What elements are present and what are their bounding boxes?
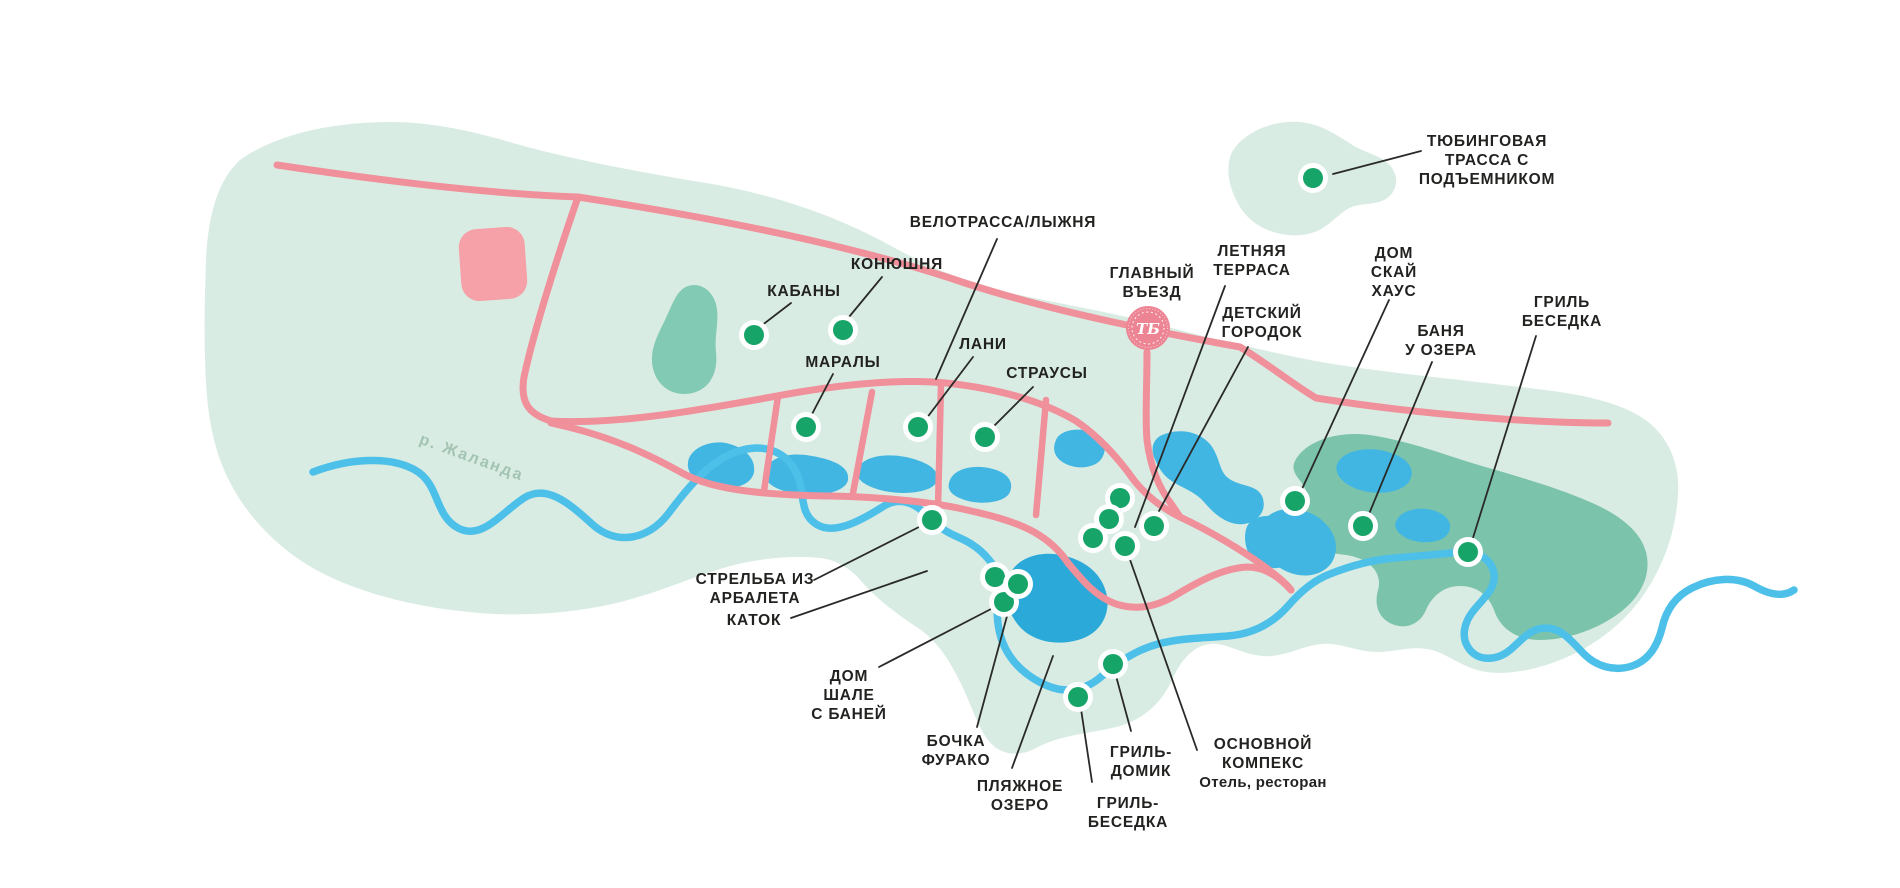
- marker-fallow-deer: [903, 412, 933, 442]
- label-grill-gazebo-south: ГРИЛЬ-БЕСЕДКА: [1088, 795, 1168, 831]
- label-lake-bathhouse: БАНЯУ ОЗЕРА: [1405, 323, 1477, 359]
- marker-crossbow-shooting: [917, 505, 947, 535]
- marker-grill-gazebo-east: [1453, 537, 1483, 567]
- label-chalet-house-bath: ДОМШАЛЕС БАНЕЙ: [811, 668, 887, 723]
- building-block: [458, 226, 529, 302]
- marker-ostriches: [970, 422, 1000, 452]
- label-marals: МАРАЛЫ: [805, 354, 880, 371]
- marker-marals: [791, 412, 821, 442]
- map-svg: р. Жаланда ТБ ТЮБИНГОВАЯТРАССА СПОДЪЕМНИ…: [0, 0, 1900, 888]
- label-beach-lake: ПЛЯЖНОЕОЗЕРО: [977, 778, 1063, 814]
- marker-boars: [739, 320, 769, 350]
- label-kids-playground: ДЕТСКИЙГОРОДОК: [1222, 304, 1303, 341]
- label-sky-house: ДОМСКАЙХАУС: [1371, 245, 1417, 300]
- marker-grill-gazebo-south: [1063, 682, 1093, 712]
- marker-tubing-track: [1298, 163, 1328, 193]
- label-crossbow-shooting: СТРЕЛЬБА ИЗАРБАЛЕТА: [696, 571, 815, 607]
- label-boars: КАБАНЫ: [767, 283, 841, 300]
- label-summer-terrace: ЛЕТНЯЯТЕРРАСА: [1213, 243, 1291, 279]
- marker-main-complex: [1078, 523, 1108, 553]
- label-ostriches: СТРАУСЫ: [1006, 365, 1087, 382]
- label-ice-rink: КАТОК: [727, 612, 781, 629]
- marker-furako-barrel: [1003, 569, 1033, 599]
- marker-main-complex: [1139, 511, 1169, 541]
- marker-main-complex: [1110, 531, 1140, 561]
- label-tubing-track: ТЮБИНГОВАЯТРАССА СПОДЪЕМНИКОМ: [1419, 133, 1555, 188]
- entrance-badge: ТБ: [1126, 306, 1170, 350]
- label-fallow-deer: ЛАНИ: [959, 336, 1007, 353]
- label-bike-ski-track: ВЕЛОТРАССА/ЛЫЖНЯ: [910, 214, 1096, 231]
- resort-map: р. Жаланда ТБ ТЮБИНГОВАЯТРАССА СПОДЪЕМНИ…: [0, 0, 1900, 888]
- label-grill-cabin: ГРИЛЬ-ДОМИК: [1110, 744, 1172, 780]
- label-stable: КОНЮШНЯ: [851, 256, 943, 273]
- entrance-badge-monogram: ТБ: [1136, 320, 1160, 338]
- label-furako-barrel: БОЧКАФУРАКО: [922, 733, 991, 769]
- label-grill-gazebo-east: ГРИЛЬБЕСЕДКА: [1522, 294, 1602, 330]
- marker-grill-cabin: [1098, 649, 1128, 679]
- marker-stable: [828, 315, 858, 345]
- marker-lake-bathhouse: [1348, 511, 1378, 541]
- marker-sky-house: [1280, 486, 1310, 516]
- label-main-complex: ОСНОВНОЙКОМПЕКСОтель, ресторан: [1199, 735, 1326, 791]
- label-main-entrance: ГЛАВНЫЙВЪЕЗД: [1110, 264, 1195, 301]
